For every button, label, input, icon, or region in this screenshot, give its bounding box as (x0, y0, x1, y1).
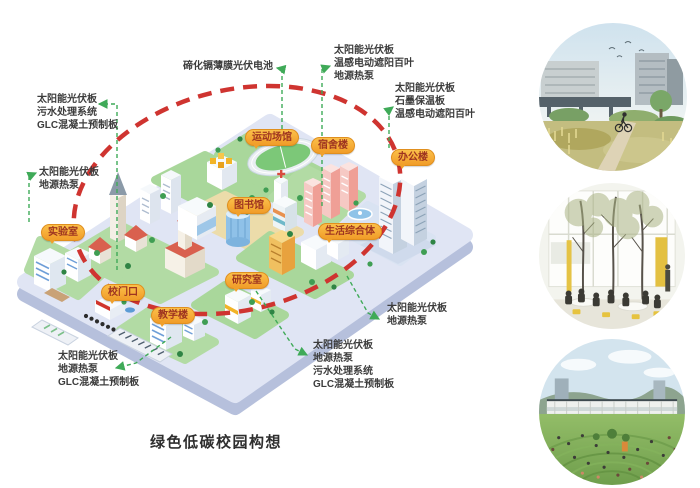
building-label-research-room: 研究室 (225, 272, 269, 289)
building-label-laboratory: 实验室 (41, 224, 85, 241)
annotation-bottom-right: 太阳能光伏板 地源热泵 (387, 302, 447, 328)
annotation-thin-film-pv: 碲化镉薄膜光伏电池 (176, 60, 273, 73)
building-label-sports-venue: 运动场馆 (245, 129, 299, 146)
annotation-bottom-middle: 太阳能光伏板 地源热泵 污水处理系统 GLC混凝土预制板 (313, 339, 394, 391)
building-label-school-gate: 校门口 (101, 284, 145, 301)
annotation-left-middle: 太阳能光伏板 地源热泵 (39, 166, 99, 192)
photo-campus-cycling-render (539, 23, 687, 171)
striped-building (273, 196, 297, 232)
building-label-dormitory: 宿舍楼 (311, 137, 355, 154)
diagram-title: 绿色低碳校园构想 (150, 431, 282, 452)
pond (348, 209, 372, 220)
annotation-left-upper: 太阳能光伏板 污水处理系统 GLC混凝土预制板 (37, 93, 118, 132)
building-label-library: 图书馆 (227, 197, 271, 214)
building-label-life-complex: 生活综合体 (318, 223, 382, 240)
building-label-office-building: 办公楼 (391, 149, 435, 166)
annotation-bottom-left: 太阳能光伏板 地源热泵 GLC混凝土预制板 (58, 350, 139, 389)
annotation-top-right-2: 太阳能光伏板 石墨保温板 温感电动遮阳百叶 (395, 82, 475, 121)
building-label-teaching: 教学楼 (151, 307, 195, 324)
photo-atrium-trees-render (539, 183, 685, 329)
photo-terraced-lawn-render (539, 339, 685, 485)
campus-isometric-map (0, 0, 520, 488)
annotation-top-right-1: 太阳能光伏板 温感电动遮阳百叶 地源热泵 (334, 44, 414, 83)
green-campus-diagram: 碲化镉薄膜光伏电池 太阳能光伏板 温感电动遮阳百叶 地源热泵 太阳能光伏板 石墨… (0, 0, 700, 488)
